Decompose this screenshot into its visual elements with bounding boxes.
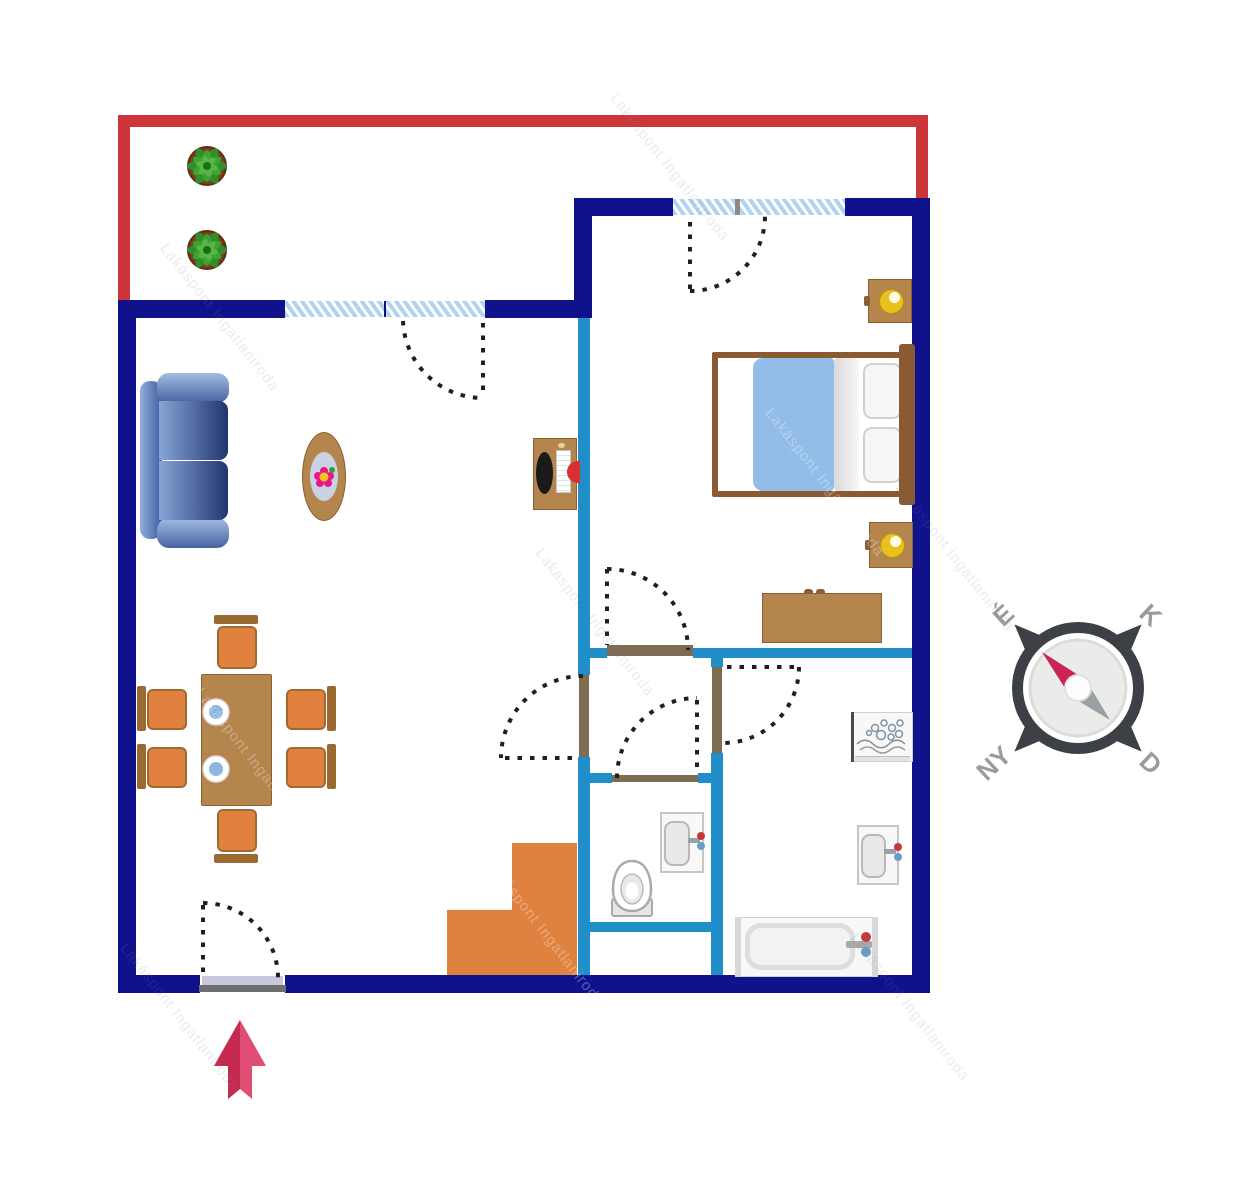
sofa-armrest-bottom xyxy=(157,518,229,548)
plan-overlay xyxy=(0,0,1240,1180)
entrance-door-leaf xyxy=(202,976,283,985)
compass-label-south: D xyxy=(1133,746,1168,781)
desk-dot xyxy=(558,443,565,448)
bathtub-end xyxy=(735,917,741,977)
watermark: Lakáspont Ingatlaniroda xyxy=(607,90,733,245)
chair-icon xyxy=(147,689,187,730)
watermark: Lakáspont Ingatlaniroda xyxy=(847,930,973,1085)
pillow-icon xyxy=(863,363,902,419)
lamp-highlight xyxy=(889,292,900,303)
left-outer-wall xyxy=(118,300,136,993)
compass-needle-south xyxy=(1070,680,1110,720)
toilet-icon xyxy=(612,861,652,916)
sofa-icon xyxy=(140,373,230,548)
pillow-icon xyxy=(863,427,902,483)
sink-basin xyxy=(861,834,886,878)
bottom-wall-right xyxy=(285,975,930,993)
sofa-cushion xyxy=(159,461,228,520)
right-outer-wall xyxy=(912,198,930,993)
dresser-handle xyxy=(816,589,825,594)
compass-icon xyxy=(999,609,1157,767)
interior-wall-vertical-left-lower xyxy=(578,757,590,975)
chair-icon-back xyxy=(137,686,146,731)
door-swing-icon-balcony-living xyxy=(403,321,483,398)
bedroom-window-divider xyxy=(735,199,740,215)
chair-icon xyxy=(286,747,326,788)
washing-machine-icon xyxy=(851,712,913,762)
plant-icon xyxy=(187,145,227,186)
watermark: Lakáspont Ingatlaniroda xyxy=(532,545,658,700)
bedroom-bottom-wall-left xyxy=(578,648,607,658)
sofa-armrest-top xyxy=(157,373,229,403)
interior-wall-vertical-right-lower xyxy=(711,753,723,975)
compass-label-west: NY xyxy=(970,740,1018,787)
sofa-cushion xyxy=(159,401,228,460)
balcony-wall-right xyxy=(916,127,928,198)
door-swing-icon-hall-wc xyxy=(617,698,697,778)
washing-machine-side xyxy=(851,712,854,762)
chair-icon xyxy=(286,689,326,730)
door-swing-icon-hall-bathroom xyxy=(723,667,799,743)
dresser-handle xyxy=(804,589,813,594)
chair-icon-back xyxy=(327,686,336,731)
door-swing-icon-entrance xyxy=(203,903,278,978)
bed-sheet xyxy=(834,358,859,491)
balcony-wall-top xyxy=(118,115,928,127)
coffee-table-top xyxy=(310,452,338,501)
entrance-door-threshold xyxy=(199,985,286,992)
bedroom-bottom-wall-right xyxy=(693,648,912,658)
chair-icon xyxy=(217,626,257,669)
chair-icon xyxy=(147,747,187,788)
living-room-window-divider xyxy=(384,301,386,317)
chair-icon-back xyxy=(214,615,258,624)
door-threshold-living-hall xyxy=(579,675,589,757)
dresser-icon xyxy=(762,593,882,643)
bathtub-inner xyxy=(745,923,855,970)
door-threshold-hall-wc xyxy=(612,775,698,782)
sink-basin xyxy=(664,821,690,866)
desk-chair-icon xyxy=(536,452,553,494)
bed-headboard xyxy=(899,344,915,505)
nightstand-knob xyxy=(864,296,870,306)
compass-label-east: K xyxy=(1133,598,1168,633)
balcony-wall-left xyxy=(118,127,130,301)
bedroom-top-wall-left xyxy=(574,198,673,216)
chair-icon xyxy=(217,809,257,852)
door-swing-icon-living-hall xyxy=(501,676,583,758)
wc-bottom-wall xyxy=(578,922,723,932)
hall-bottom-wall-left xyxy=(578,773,612,783)
door-threshold-hall-bathroom xyxy=(712,667,722,753)
chair-icon-back xyxy=(327,744,336,789)
bedroom-left-wall xyxy=(574,198,592,318)
compass-needle-north xyxy=(1042,652,1086,696)
plant-icon xyxy=(187,229,227,270)
washing-machine-base xyxy=(855,756,910,761)
interior-wall-vertical-right-upper xyxy=(711,658,723,667)
floor-plan: É K NY D Lakáspont Ingatlaniroda Lakáspo… xyxy=(0,0,1240,1180)
hall-bottom-wall-right xyxy=(698,773,723,783)
chair-icon-back xyxy=(137,744,146,789)
chair-icon-back xyxy=(214,854,258,863)
door-swing-icon-bedroom xyxy=(607,569,688,650)
watermark: Lakáspont Ingatlaniroda xyxy=(117,940,243,1095)
lamp-highlight xyxy=(890,536,901,547)
